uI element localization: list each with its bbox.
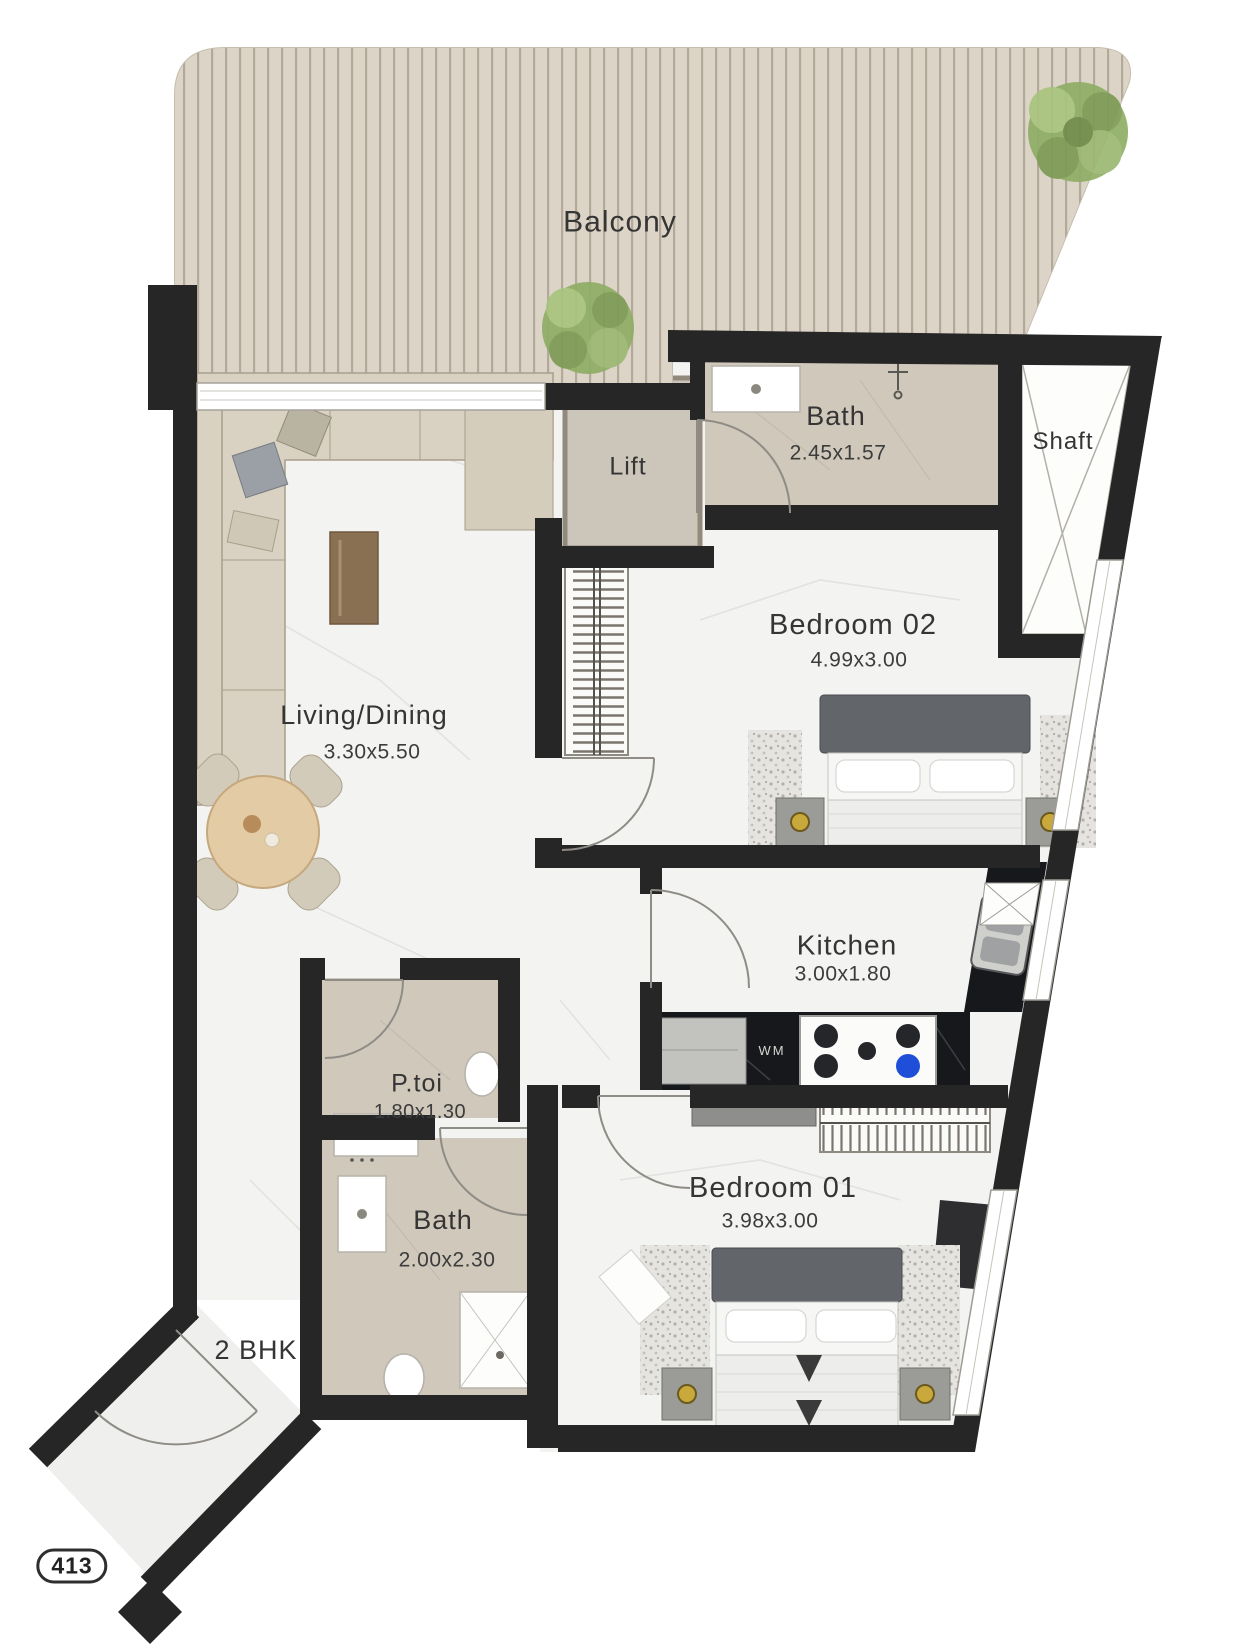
pillow [816,1310,896,1342]
bedroom-01-dims: 3.98x3.00 [722,1209,819,1232]
refrigerator [652,1018,746,1084]
balcony-tree-left [542,282,634,374]
living-window [197,383,545,410]
bath-lower-dims: 2.00x2.30 [399,1248,496,1271]
kitchen-label: Kitchen [797,931,897,962]
living-dining-label: Living/Dining [280,701,448,731]
wardrobe-bedroom-02 [565,558,628,755]
floor-plan: Balcony Living/Dining 3.30x5.50 Lift Bat… [0,0,1256,1649]
stove [800,1016,936,1086]
living-dining-dims: 3.30x5.50 [324,740,421,763]
bedroom-02-dims: 4.99x3.00 [811,648,908,671]
washing-machine-label: WM [758,1044,785,1058]
lift-label: Lift [609,453,646,481]
kitchen-dims: 3.00x1.80 [795,962,892,985]
toilet [384,1354,424,1402]
pillow [726,1310,806,1342]
gas-burner-blue [896,1054,920,1078]
bath-lower-label: Bath [413,1206,473,1236]
lamp [791,813,809,831]
unit-type-label: 2 BHK [214,1336,297,1366]
bed-headboard [820,695,1030,753]
ptoi-dims: 1.80x1.30 [374,1101,466,1123]
bath-top-label: Bath [806,402,866,432]
shower [460,1292,530,1388]
lamp [678,1385,696,1403]
balcony-label: Balcony [563,206,677,239]
floor-plan-drawing [0,0,1256,1649]
bedroom-02-label: Bedroom 02 [769,610,937,642]
unit-number-badge: 413 [36,1549,107,1584]
lamp [916,1385,934,1403]
shaft-label: Shaft [1032,429,1093,455]
bed-blanket [828,800,1022,845]
bed-headboard [712,1248,902,1302]
pillow [930,760,1014,792]
bedroom-01-label: Bedroom 01 [689,1173,857,1205]
bath-top-dims: 2.45x1.57 [790,441,887,464]
tv-console [330,532,378,624]
ptoi-label: P.toi [391,1070,443,1098]
toilet [465,1052,499,1096]
balcony-tree-right [1028,82,1128,182]
pillow [836,760,920,792]
